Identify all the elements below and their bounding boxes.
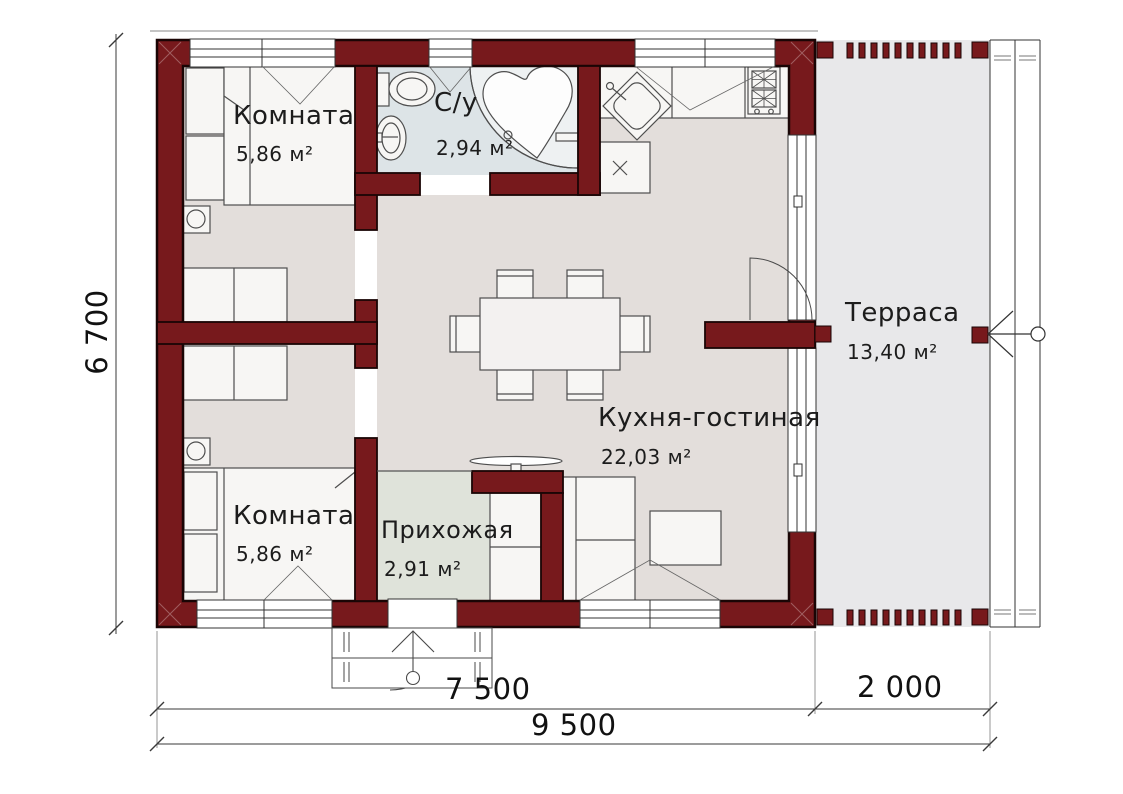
room-area-hallway: 2,91 м² (384, 557, 462, 581)
room-label-terrace: Терраса (845, 298, 960, 328)
dimension-left-total: 6 700 (80, 289, 114, 375)
room-area-bathroom: 2,94 м² (436, 136, 514, 160)
section-arrow (988, 311, 1045, 357)
dimension-bottom-terrace: 2 000 (857, 670, 943, 704)
wardrobe-hallway (490, 493, 541, 601)
room-area-bedroom-top: 5,86 м² (236, 142, 314, 166)
toilet (375, 72, 435, 106)
floor-terrace (815, 40, 990, 627)
bed-top (186, 62, 357, 205)
bed-bottom (182, 468, 355, 603)
window-bedroom-bottom (197, 600, 332, 628)
window-kitchen (635, 39, 775, 67)
floor-plan-drawing (0, 0, 1123, 794)
glass-wall-lower (788, 348, 816, 532)
nightstand-top (183, 206, 210, 233)
floor-plan: Комната 5,86 м² С/у 2,94 м² Кухня-гостин… (0, 0, 1123, 794)
room-area-bedroom-bottom: 5,86 м² (236, 542, 314, 566)
stove (748, 67, 780, 114)
nightstand-bottom (183, 438, 210, 465)
room-area-kitchen-living: 22,03 м² (601, 445, 692, 469)
room-label-bedroom-top: Комната (233, 101, 355, 131)
room-label-bedroom-bottom: Комната (233, 501, 355, 531)
window-living (580, 600, 720, 628)
front-door-opening (388, 599, 457, 628)
room-label-kitchen-living: Кухня-гостиная (598, 403, 821, 433)
window-bedroom-top (190, 39, 335, 67)
room-label-hallway: Прихожая (381, 516, 514, 544)
dimension-bottom-total: 9 500 (531, 708, 617, 742)
dimension-bottom-house: 7 500 (445, 672, 531, 706)
coffee-table (650, 511, 721, 565)
wardrobe-bottom (181, 346, 287, 400)
sofa (562, 477, 635, 603)
room-label-bathroom: С/у (434, 88, 478, 118)
wardrobe-top (181, 268, 287, 322)
glass-wall-upper (788, 135, 816, 320)
room-area-terrace: 13,40 м² (847, 340, 938, 364)
window-bathroom (429, 39, 472, 67)
